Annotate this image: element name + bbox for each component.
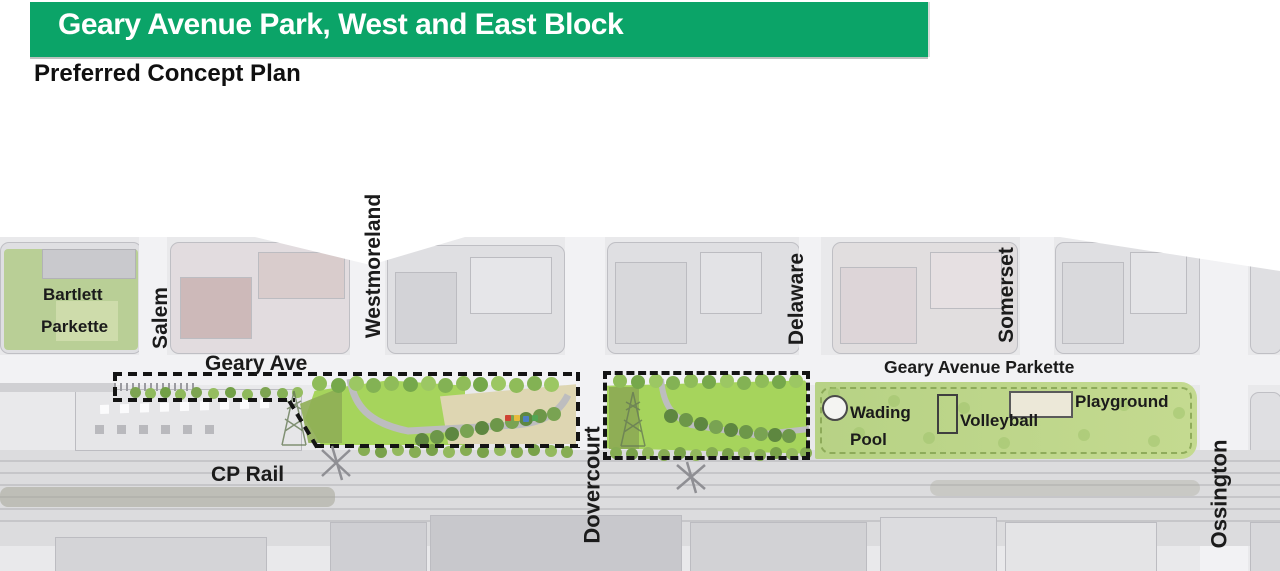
building [1250,522,1280,571]
west-block-boundary [113,398,295,402]
title-banner: Geary Avenue Park, West and East Block [30,2,928,57]
tree-line [0,487,335,507]
page: Geary Avenue Park, West and East Block P… [0,0,1280,571]
wading-pool-circle [822,395,848,421]
wading-pool-label-line1: Wading [850,403,911,423]
building [42,249,136,279]
building [180,277,252,339]
geary-ave-label: Geary Ave [205,352,307,376]
building [1005,522,1157,571]
west-block-boundary [315,444,578,448]
building [258,252,345,299]
railway-crossing-icon [673,459,709,495]
building [1062,262,1124,344]
building [330,522,427,571]
west-block-path [300,377,580,449]
building [470,257,552,314]
building [615,262,687,344]
play-equipment [505,415,511,421]
tree-line [930,480,1200,496]
railway-crossing-icon [318,442,354,482]
street-label-somerset: Somerset [992,238,1022,351]
bartlett-parkette-label-line2: Parkette [41,317,108,337]
building [700,252,762,314]
building [1130,252,1187,314]
volleyball-court-outline [937,394,958,434]
page-title: Geary Avenue Park, West and East Block [58,8,623,42]
playground-label: Playground [1075,392,1169,412]
page-subtitle: Preferred Concept Plan [34,60,301,88]
geary-avenue-parkette-label: Geary Avenue Parkette [884,357,1074,378]
volleyball-label: Volleyball [960,411,1038,431]
cp-rail-label: CP Rail [211,463,284,487]
wading-pool-label-line2: Pool [850,430,887,450]
building [690,522,867,571]
somerset-road [1020,237,1054,362]
rail-spur [0,383,114,392]
west-block-boundary [113,372,580,376]
building [880,517,997,571]
tree-row [130,387,141,398]
street-label-westmoreland: Westmoreland [358,182,390,350]
street-label-salem: Salem [146,281,176,355]
building [55,537,267,571]
tree-row [312,376,327,391]
fence [114,383,194,391]
building [395,272,457,344]
street-label-ossington: Ossington [1203,428,1235,559]
east-block-boundary [603,371,810,460]
building [840,267,917,344]
street-label-dovercourt: Dovercourt [577,415,609,555]
parked-cars [95,425,215,434]
street-label-delaware: Delaware [782,243,812,355]
bartlett-parkette-label-line1: Bartlett [43,285,103,305]
building [430,515,682,571]
